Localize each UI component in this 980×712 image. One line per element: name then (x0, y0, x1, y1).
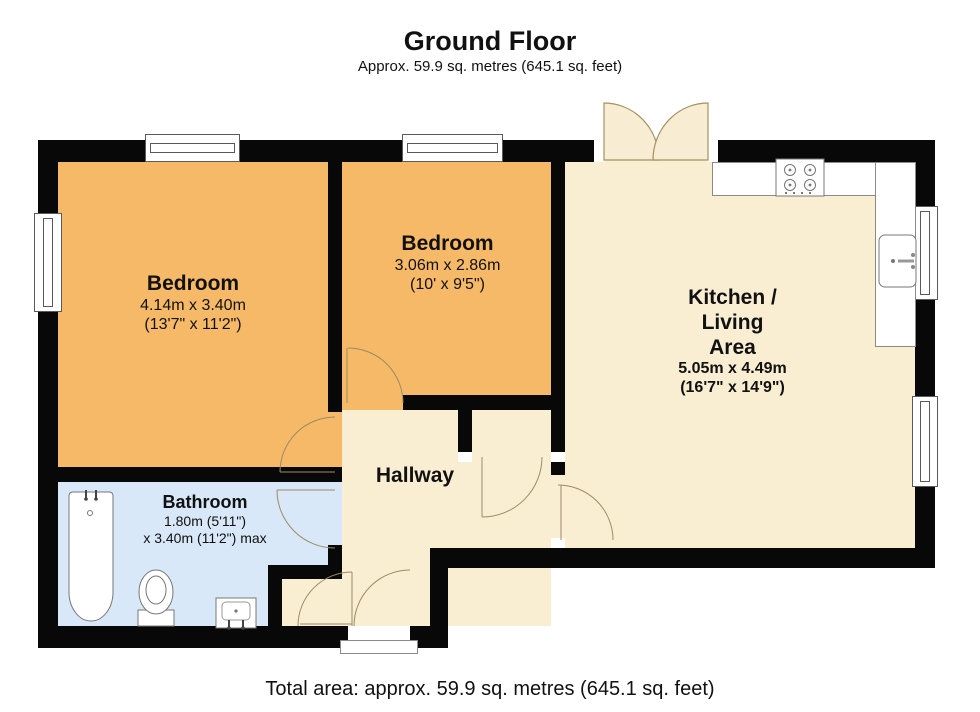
wall-segment (328, 140, 342, 412)
hallway-alcove-floor (282, 579, 342, 626)
wall-segment (915, 140, 935, 208)
door-jamb (594, 140, 604, 162)
wall-segment (38, 626, 348, 648)
wall-segment (38, 140, 58, 215)
label-bedroom-2: Bedroom 3.06m x 2.86m (10' x 9'5") (345, 232, 550, 295)
page-title: Ground Floor (0, 26, 980, 57)
bathroom-dims-line2: x 3.40m (11'2") max (115, 530, 295, 547)
kitchen-name-line3: Area (640, 336, 825, 361)
wall-segment (268, 565, 282, 626)
wall-segment (551, 462, 565, 475)
door-jamb (551, 538, 565, 548)
bedroom-1-name: Bedroom (78, 272, 308, 297)
wall-segment (240, 140, 402, 162)
window-kitchen-lower (912, 396, 938, 487)
wall-segment (403, 395, 565, 410)
wall-segment (551, 548, 565, 568)
bedroom-2-dims-imperial: (10' x 9'5") (345, 276, 550, 295)
kitchen-name-line2: Living (640, 311, 825, 336)
wall-segment (38, 467, 342, 482)
bedroom-1-dims-metric: 4.14m x 3.40m (78, 297, 308, 316)
wall-segment (430, 548, 935, 568)
floor-plan: Ground Floor Approx. 59.9 sq. metres (64… (0, 0, 980, 712)
door-jamb (708, 140, 718, 162)
page-subtitle: Approx. 59.9 sq. metres (645.1 sq. feet) (0, 58, 980, 75)
doorway-kitchen (551, 475, 565, 538)
door-jamb (458, 452, 472, 462)
label-hallway: Hallway (350, 464, 480, 489)
wall-segment (551, 410, 565, 452)
doorway-bedroom-1 (328, 412, 342, 467)
wall-segment (551, 140, 565, 410)
bedroom-1-dims-imperial: (13'7" x 11'2") (78, 316, 308, 335)
hallway-name: Hallway (350, 464, 480, 489)
wall-segment (503, 140, 594, 162)
kitchen-name-line1: Kitchen / (640, 286, 825, 311)
wall-segment (458, 410, 472, 452)
label-bathroom: Bathroom 1.80m (5'11") x 3.40m (11'2") m… (115, 492, 295, 546)
doorway-bedroom-2 (342, 395, 403, 410)
bathroom-name: Bathroom (115, 492, 295, 513)
window-bedroom-2 (402, 134, 503, 162)
label-kitchen-living: Kitchen / Living Area 5.05m x 4.49m (16'… (640, 286, 825, 398)
doorway-entry-french-doors (604, 140, 708, 162)
kitchen-dims-metric: 5.05m x 4.49m (640, 360, 825, 379)
doorway-bathroom (328, 482, 342, 545)
window-bedroom-1-side (34, 213, 62, 312)
entrance-door-frame (340, 640, 418, 654)
wall-segment (915, 487, 935, 568)
kitchen-counter-side (875, 162, 916, 347)
kitchen-dims-imperial: (16'7" x 14'9") (640, 379, 825, 398)
bathroom-dims-line1: 1.80m (5'11") (115, 513, 295, 530)
window-bedroom-1 (145, 134, 240, 162)
bedroom-2-name: Bedroom (345, 232, 550, 257)
label-bedroom-1: Bedroom 4.14m x 3.40m (13'7" x 11'2") (78, 272, 308, 335)
bedroom-2-dims-metric: 3.06m x 2.86m (345, 257, 550, 276)
door-jamb (551, 452, 565, 462)
wall-segment (718, 140, 935, 162)
total-area-text: Total area: approx. 59.9 sq. metres (645… (0, 678, 980, 701)
wall-segment (915, 300, 935, 398)
